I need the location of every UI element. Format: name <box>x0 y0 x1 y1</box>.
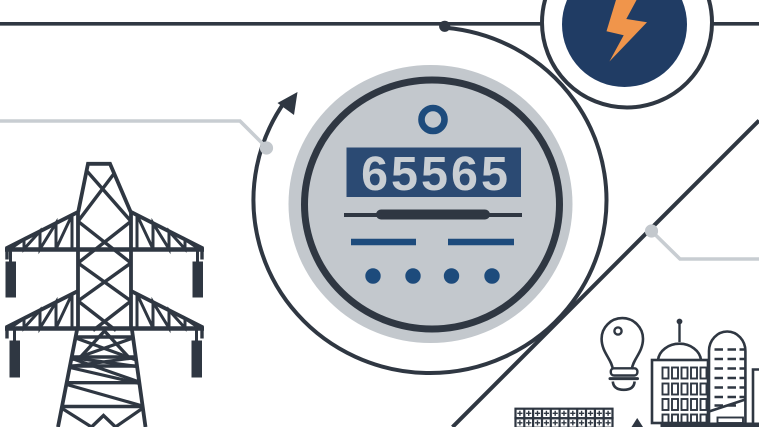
svg-text:65565: 65565 <box>361 147 511 201</box>
